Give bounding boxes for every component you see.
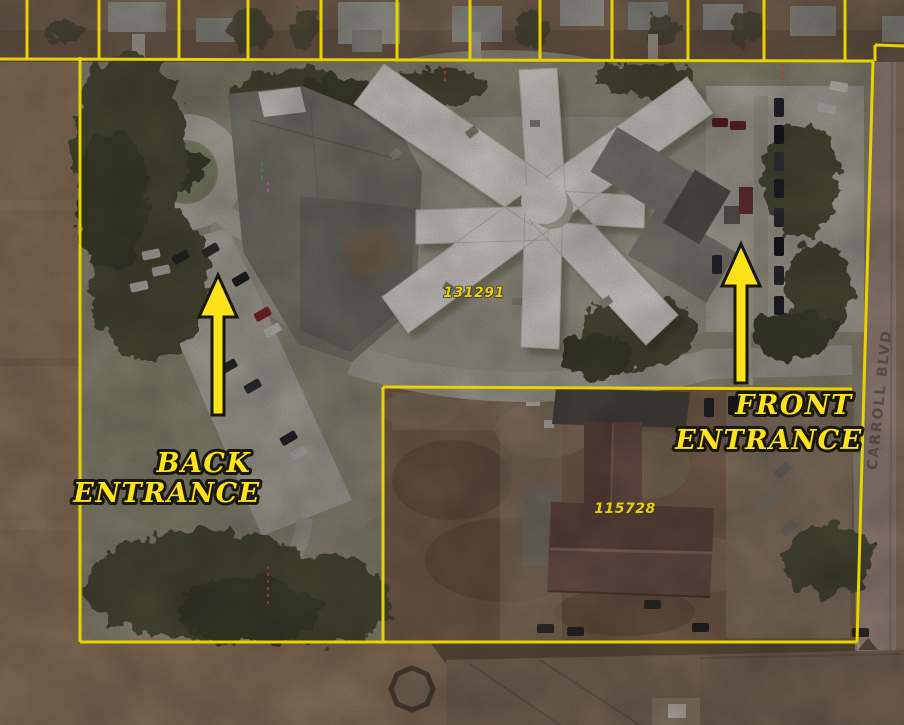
parcel-number-131291: 131291 <box>443 285 504 301</box>
boundary-secondary-north <box>383 387 852 389</box>
back-entrance-label-line2: ENTRANCE <box>72 478 261 509</box>
front-entrance-label-line2: ENTRANCE <box>674 425 863 456</box>
aerial-photo: 131291 115728 CARROLL BLVD BACK ENTRANCE… <box>0 0 904 725</box>
parcel-number-115728: 115728 <box>594 501 655 517</box>
back-entrance-label-line1: BACK <box>156 448 252 479</box>
photo-grain <box>0 0 904 725</box>
boundary-north <box>0 59 873 61</box>
front-entrance-label-line1: FRONT <box>734 390 853 421</box>
aerial-map-view[interactable]: 131291 115728 CARROLL BLVD BACK ENTRANCE… <box>0 0 904 725</box>
